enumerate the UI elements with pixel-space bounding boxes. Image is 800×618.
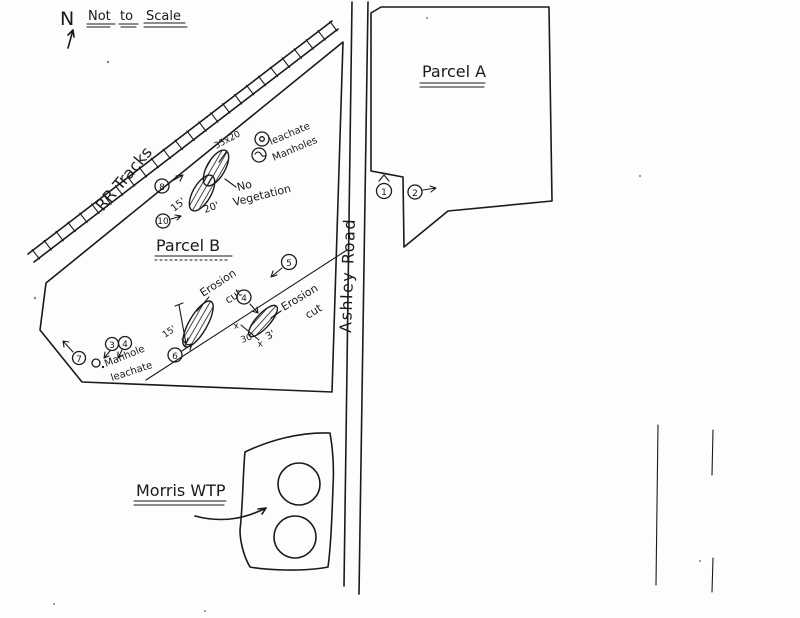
east-line-1 — [656, 425, 658, 585]
erosion-west-depth: 15' — [161, 324, 178, 340]
svg-text:2: 2 — [412, 189, 418, 199]
photo-marker-1-caret — [379, 175, 389, 181]
svg-text:10: 10 — [157, 217, 169, 227]
wtp-tank-1 — [278, 463, 320, 505]
svg-text:7: 7 — [76, 355, 82, 365]
morris-wtp-label: Morris WTP — [136, 481, 226, 500]
mound-area: 35x20 leachate Manholes No Vegetation 15… — [169, 121, 319, 216]
erosion-east-dim-3: 3' — [264, 329, 277, 343]
site-sketch-page: N Not to Scale RR Tracks Ashley Road Par… — [0, 0, 800, 618]
measure-x-right: x — [257, 339, 265, 350]
scale-note-word-scale: Scale — [146, 9, 181, 24]
erosion-east-label-line2: cut — [303, 301, 325, 321]
north-arrow-icon — [68, 30, 74, 48]
erosion-cut-east: Erosion cut x x 30' 3' — [233, 282, 325, 350]
photo-marker-2: 2 — [408, 185, 436, 199]
morris-wtp: Morris WTP — [134, 433, 333, 570]
svg-text:6: 6 — [172, 352, 178, 362]
scale-note-word-to: to — [120, 9, 133, 24]
wtp-tank-2 — [274, 516, 316, 558]
rr-tracks-label: RR Tracks — [92, 143, 156, 215]
east-line-2 — [712, 430, 713, 475]
leachate-manhole-symbol-1-inner — [260, 137, 265, 142]
photo-marker-10-arrow — [171, 215, 181, 220]
parcel-a-underline — [420, 83, 485, 87]
photo-marker-8-arrow — [170, 175, 183, 182]
parcel-a-label: Parcel A — [422, 62, 486, 81]
mound-width-15: 15' — [169, 196, 188, 214]
photo-marker-10: 10 — [156, 214, 181, 228]
svg-text:4: 4 — [122, 340, 128, 350]
leachate-manhole-symbol-2 — [252, 148, 266, 162]
railroad: RR Tracks — [28, 21, 338, 262]
svg-text:8: 8 — [159, 183, 165, 193]
photo-marker-7-arrow — [63, 341, 73, 352]
scale-note-word-not: Not — [88, 9, 111, 24]
morris-wtp-arrow — [195, 508, 266, 520]
manhole-south-symbol — [92, 359, 100, 367]
parcel-a: Parcel A — [371, 7, 552, 247]
erosion-cut-west-shape — [177, 297, 219, 351]
ashley-road-label: Ashley Road — [336, 218, 359, 334]
photo-marker-1: 1 — [377, 175, 392, 199]
mound-dimension: 35x20 — [213, 129, 243, 151]
photo-marker-8: 8 — [155, 175, 183, 193]
compass: N — [60, 8, 74, 48]
svg-text:4: 4 — [241, 294, 247, 304]
parcel-b-label: Parcel B — [156, 236, 220, 255]
railroad-ties — [32, 21, 337, 259]
photo-marker-2-arrow — [423, 186, 436, 192]
site-sketch-svg: N Not to Scale RR Tracks Ashley Road Par… — [0, 0, 800, 618]
scan-specks — [34, 17, 701, 612]
leachate-manhole-symbol-2-squiggle — [255, 152, 266, 156]
north-label: N — [60, 8, 74, 30]
erosion-cut-west: Erosion cut 15' — [161, 267, 245, 351]
no-vegetation-leader — [225, 179, 236, 187]
scale-note: Not to Scale — [87, 9, 187, 27]
east-line-3 — [712, 558, 713, 592]
measure-x-left: x — [233, 321, 241, 332]
manhole-south-dot — [102, 366, 104, 368]
svg-text:1: 1 — [381, 188, 387, 198]
morris-wtp-underline — [134, 501, 226, 505]
photo-marker-5: 5 — [271, 255, 297, 278]
photo-marker-4-mid: 4 — [237, 290, 258, 313]
svg-text:3: 3 — [109, 341, 115, 351]
road-east-line — [359, 2, 368, 594]
east-road-fragments — [656, 425, 713, 592]
parcel-a-boundary — [371, 7, 552, 247]
svg-text:5: 5 — [286, 259, 292, 269]
leachate-manhole-symbol-1 — [255, 132, 269, 146]
photo-marker-5-arrow — [271, 268, 282, 277]
